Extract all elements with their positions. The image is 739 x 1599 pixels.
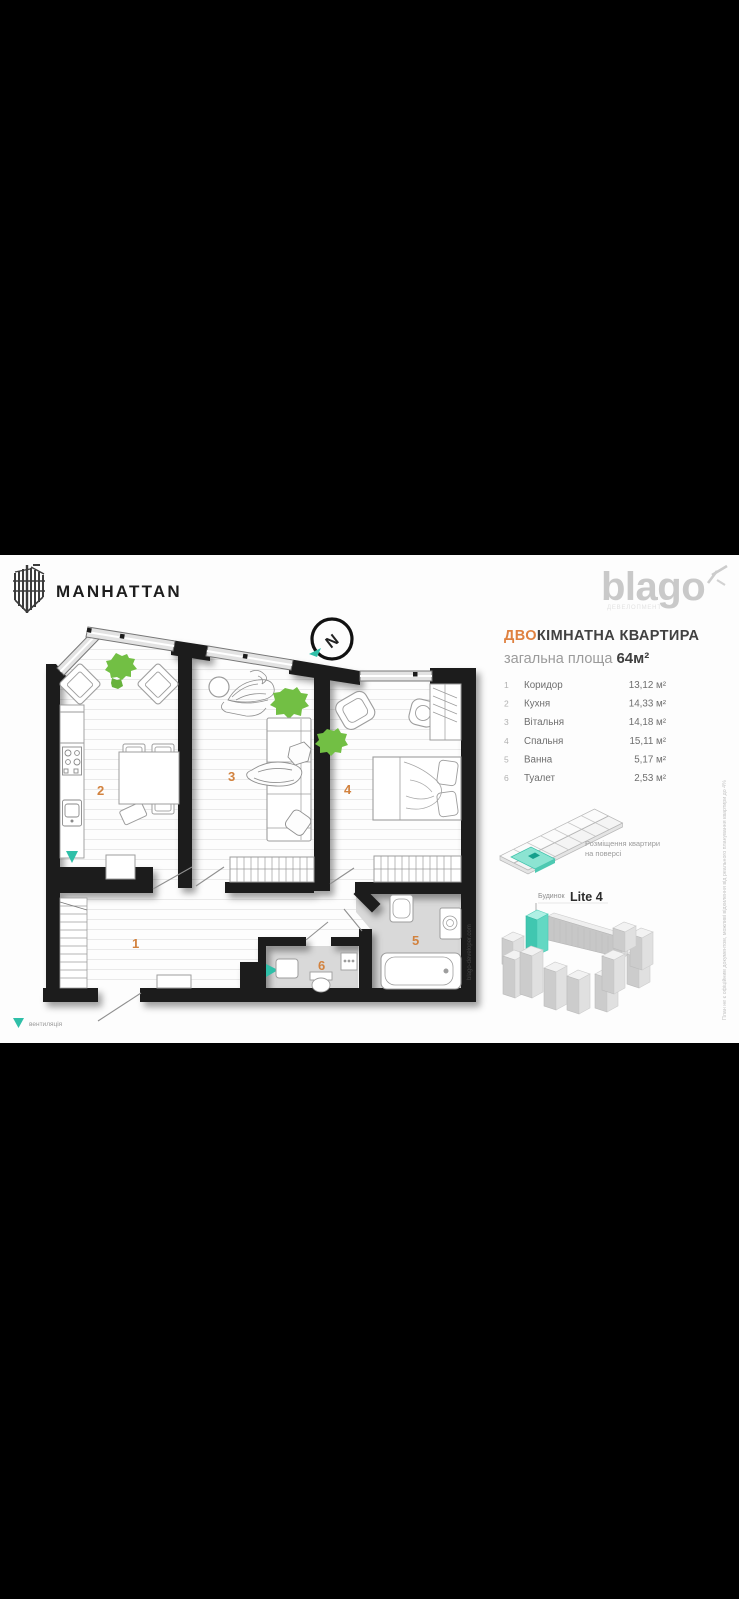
svg-text:вентиляція: вентиляція <box>29 1020 63 1028</box>
svg-text:5: 5 <box>412 933 419 948</box>
svg-text:13,12 м²: 13,12 м² <box>629 680 667 691</box>
svg-text:загальна площа 64м²: загальна площа 64м² <box>504 650 649 667</box>
svg-text:5: 5 <box>504 754 509 764</box>
svg-text:Розміщення квартири: Розміщення квартири <box>585 839 660 848</box>
svg-text:ДВОКІМНАТНА КВАРТИРА: ДВОКІМНАТНА КВАРТИРА <box>504 628 700 644</box>
svg-text:1: 1 <box>132 936 139 951</box>
svg-text:5,17 м²: 5,17 м² <box>634 754 667 765</box>
svg-text:6: 6 <box>318 958 325 973</box>
svg-text:2,53 м²: 2,53 м² <box>634 773 667 784</box>
svg-text:15,11 м²: 15,11 м² <box>629 736 666 747</box>
svg-text:Кухня: Кухня <box>524 699 550 710</box>
svg-text:План не є офіційним документом: План не є офіційним документом, можливі … <box>721 780 728 1020</box>
svg-text:ДЕВЕЛОПМЕНТ: ДЕВЕЛОПМЕНТ <box>607 605 662 611</box>
svg-text:Вітальня: Вітальня <box>524 717 564 728</box>
svg-text:6: 6 <box>504 773 509 783</box>
svg-text:blago-developer.com: blago-developer.com <box>467 924 473 980</box>
svg-text:Будинок: Будинок <box>538 893 565 900</box>
svg-text:2: 2 <box>504 699 509 709</box>
svg-text:на поверсі: на поверсі <box>585 849 622 858</box>
svg-text:14,33 м²: 14,33 м² <box>629 699 667 710</box>
svg-text:2: 2 <box>97 783 104 798</box>
svg-text:Спальня: Спальня <box>524 736 563 747</box>
svg-text:Lite 4: Lite 4 <box>570 890 603 904</box>
svg-text:4: 4 <box>504 736 509 746</box>
svg-text:3: 3 <box>228 769 235 784</box>
svg-text:Ванна: Ванна <box>524 754 553 765</box>
svg-text:N: N <box>323 631 343 652</box>
svg-text:4: 4 <box>344 782 352 797</box>
svg-text:Коридор: Коридор <box>524 680 563 691</box>
svg-text:1: 1 <box>504 680 509 690</box>
svg-text:blago: blago <box>601 565 705 609</box>
svg-text:3: 3 <box>504 717 509 727</box>
svg-text:14,18 м²: 14,18 м² <box>629 717 667 728</box>
svg-text:Туалет: Туалет <box>524 773 556 784</box>
svg-text:MANHATTAN: MANHATTAN <box>56 582 182 601</box>
